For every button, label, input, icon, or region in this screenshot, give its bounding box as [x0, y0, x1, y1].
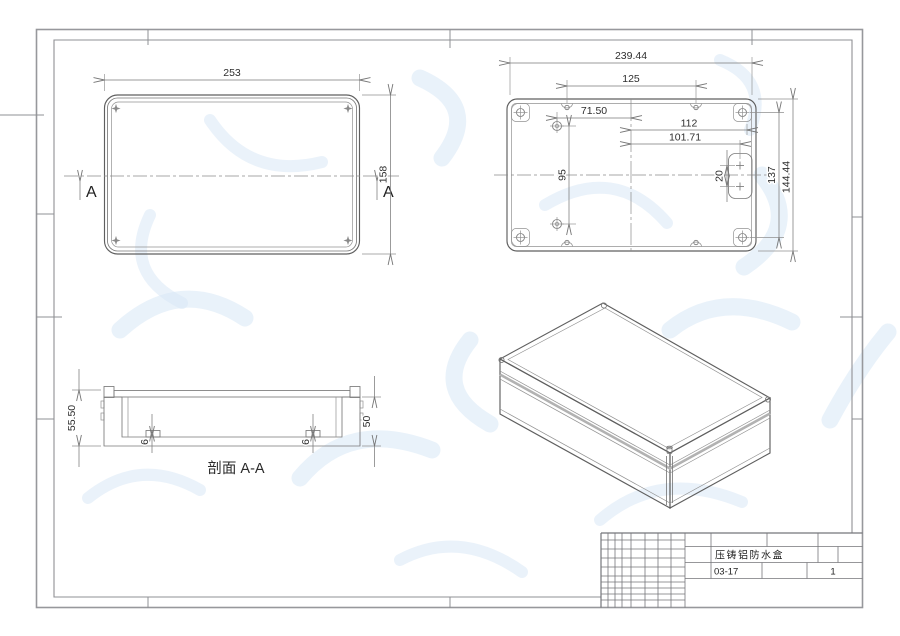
svg-text:71.50: 71.50	[581, 105, 607, 117]
cad-drawing: A A 253 158	[0, 0, 900, 636]
svg-text:125: 125	[622, 73, 640, 85]
floor-boss	[146, 431, 160, 438]
mounting-boss	[550, 217, 564, 231]
tab-hole	[736, 183, 744, 191]
svg-text:101.71: 101.71	[669, 132, 701, 144]
svg-text:6: 6	[139, 439, 151, 445]
floor-boss	[306, 431, 320, 438]
corner-screw-boss	[514, 106, 528, 120]
svg-text:50: 50	[361, 416, 373, 428]
dim-tab-hole-offset: 101.71	[631, 132, 740, 160]
section-label: 剖面 A-A	[207, 460, 265, 477]
box-section	[104, 397, 360, 446]
dim-left-boss-height: 6	[139, 414, 152, 453]
watermark-pattern	[88, 60, 888, 572]
part-name: 压铸铝防水盒	[715, 549, 784, 562]
svg-text:253: 253	[223, 67, 241, 79]
svg-text:158: 158	[378, 166, 390, 184]
svg-text:239.44: 239.44	[615, 50, 647, 62]
svg-text:137: 137	[766, 166, 778, 184]
gasket-seam	[500, 375, 770, 469]
svg-text:144.44: 144.44	[781, 161, 793, 193]
mounting-boss	[550, 119, 564, 133]
section-marker-right: A	[383, 184, 394, 201]
section-marker-left: A	[86, 184, 97, 201]
dim-lid-height: 158	[362, 95, 396, 254]
revision-grid	[601, 533, 685, 608]
corner-screw-boss	[514, 231, 528, 245]
title-fields: 压铸铝防水盒 03-17 1	[685, 533, 863, 579]
mounting-tab	[729, 154, 753, 199]
lid-top-view: A A 253 158	[64, 67, 399, 254]
dim-right-boss-height: 6	[300, 414, 313, 453]
dim-lid-width: 253	[105, 67, 360, 91]
svg-text:95: 95	[557, 169, 569, 181]
dim-boss-offset: 71.50	[557, 105, 631, 121]
corner-screw-boss	[736, 106, 750, 120]
svg-text:20: 20	[714, 170, 726, 182]
drawing-sheet: A A 253 158	[0, 0, 900, 636]
dim-section-inner-height: 50	[361, 376, 381, 467]
lid-section	[114, 391, 350, 398]
svg-text:6: 6	[300, 439, 312, 445]
dim-tab-hole-span: 20	[714, 150, 736, 202]
drawing-number: 03-17	[714, 567, 738, 578]
isometric-view	[499, 303, 771, 508]
dim-section-outer-height: 55.50	[66, 369, 101, 467]
svg-text:112: 112	[681, 118, 698, 130]
sheet-number: 1	[830, 567, 835, 578]
section-arrow-left: A	[80, 181, 97, 201]
tab-hole	[736, 162, 744, 170]
title-block: 压铸铝防水盒 03-17 1	[601, 533, 863, 608]
corner-screw-boss	[736, 231, 750, 245]
section-view: 55.50 50 6 6 剖面 A-A	[66, 369, 381, 477]
svg-text:55.50: 55.50	[66, 405, 78, 431]
